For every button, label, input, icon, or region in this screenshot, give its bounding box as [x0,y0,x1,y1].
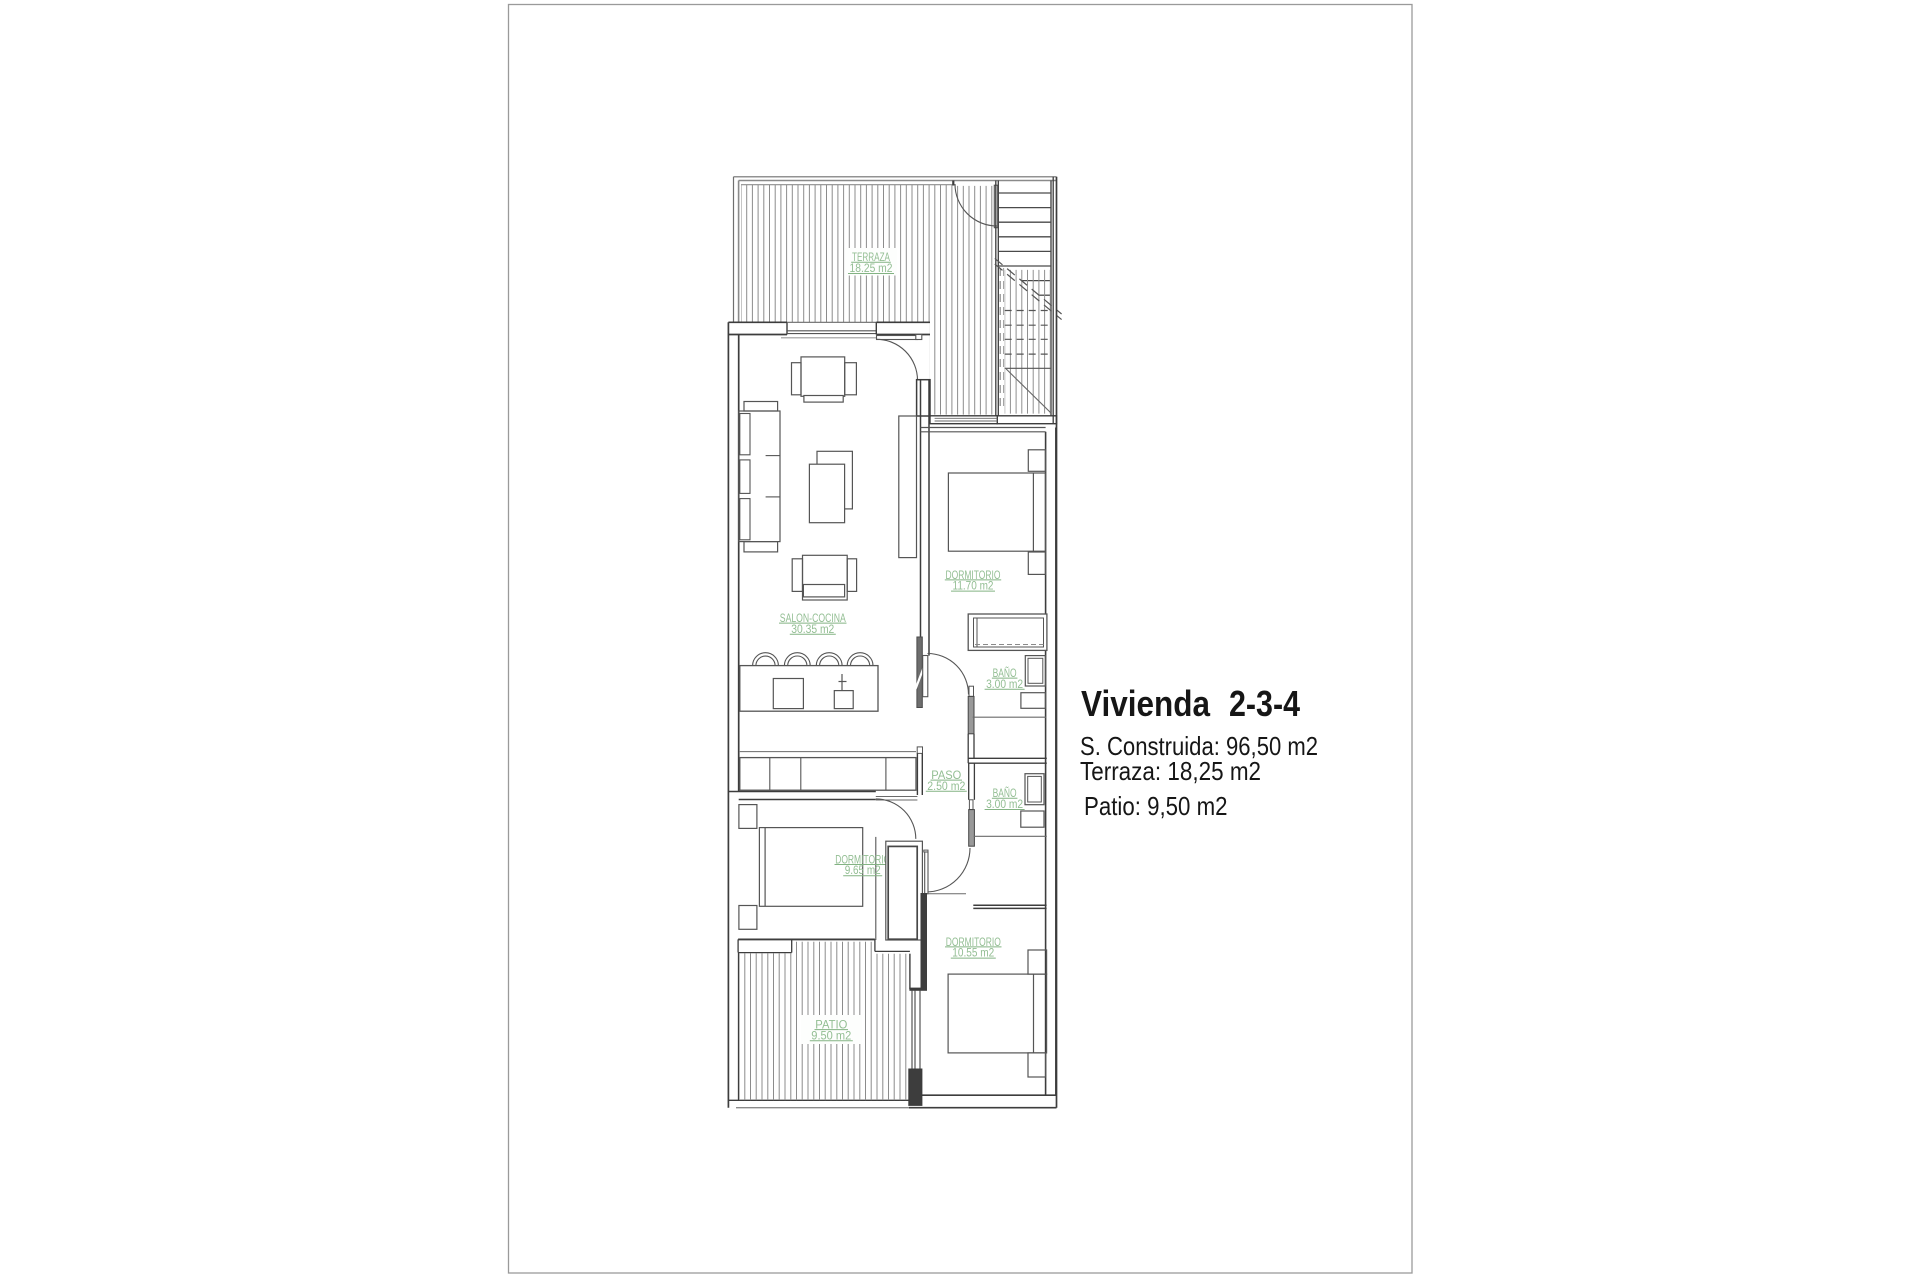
svg-text:10.55 m2: 10.55 m2 [952,946,994,960]
svg-text:11.70 m2: 11.70 m2 [953,579,994,593]
svg-text:2.50 m2: 2.50 m2 [927,779,965,793]
svg-text:18.25 m2: 18.25 m2 [850,261,893,275]
svg-text:9.65 m2: 9.65 m2 [845,863,881,877]
svg-text:9.50 m2: 9.50 m2 [811,1028,851,1042]
svg-text:30.35 m2: 30.35 m2 [791,622,834,636]
svg-text:3.00 m2: 3.00 m2 [986,797,1023,811]
svg-text:3.00 m2: 3.00 m2 [986,677,1023,691]
